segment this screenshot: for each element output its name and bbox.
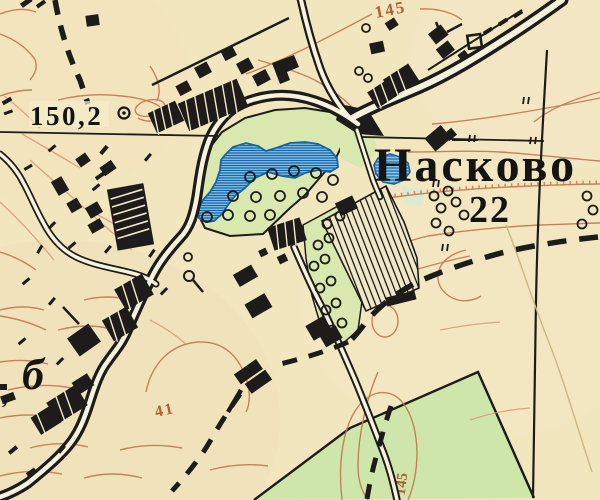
svg-text:Насково: Насково [374,139,577,192]
svg-text:22: 22 [469,189,511,231]
svg-text:,: , [2,384,8,409]
svg-text:б: б [22,350,46,399]
svg-text:150,2: 150,2 [30,101,103,131]
